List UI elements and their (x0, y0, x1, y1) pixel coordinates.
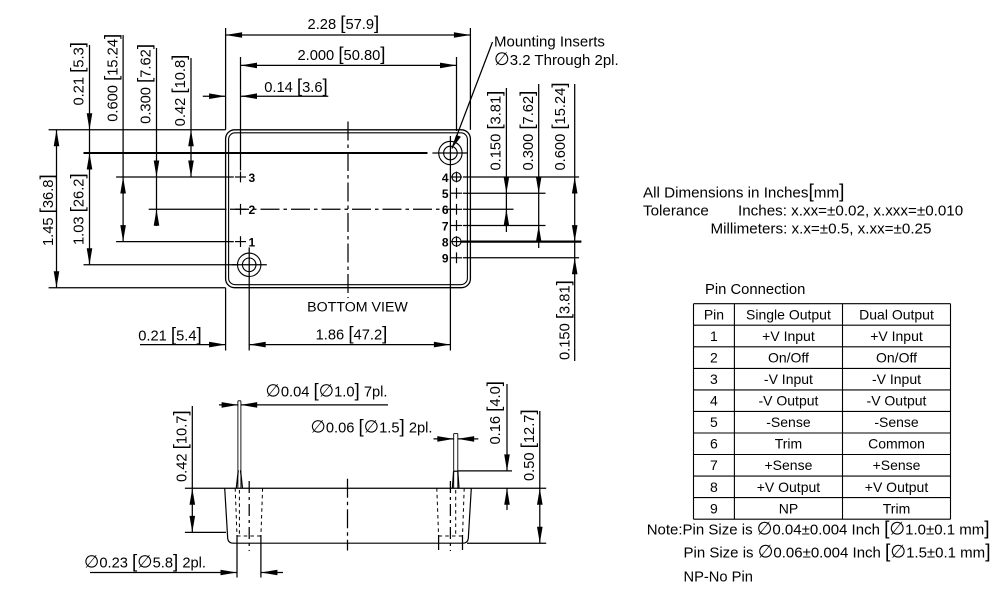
svg-text:NP: NP (779, 500, 798, 516)
svg-text:6: 6 (710, 436, 718, 452)
svg-text:Note:Pin Size is ∅0.04±0.004 I: Note:Pin Size is ∅0.04±0.004 Inch [∅1.0±… (647, 519, 990, 540)
svg-text:Trim: Trim (883, 500, 910, 516)
svg-text:BOTTOM VIEW: BOTTOM VIEW (307, 300, 408, 316)
svg-text:Pin Size is ∅0.06±0.004 Inch [: Pin Size is ∅0.06±0.004 Inch [∅1.5±0.1 m… (684, 542, 991, 563)
svg-text:Millimeters: x.x=±0.5, x.xx=±0: Millimeters: x.x=±0.5, x.xx=±0.25 (711, 221, 932, 238)
svg-text:4: 4 (442, 171, 449, 185)
svg-text:5: 5 (710, 414, 718, 430)
svg-text:+V Input: +V Input (870, 328, 923, 344)
svg-text:Common: Common (868, 436, 925, 452)
svg-text:2: 2 (710, 350, 718, 366)
svg-text:Mounting Inserts: Mounting Inserts (494, 34, 605, 51)
svg-text:+V Input: +V Input (762, 328, 815, 344)
svg-text:+Sense: +Sense (765, 457, 813, 473)
svg-text:9: 9 (710, 500, 718, 516)
svg-text:3: 3 (249, 171, 256, 185)
svg-text:2: 2 (249, 203, 256, 217)
svg-text:∅3.2 Through 2pl.: ∅3.2 Through 2pl. (494, 49, 619, 69)
svg-text:+V Output: +V Output (757, 479, 821, 495)
svg-text:7: 7 (442, 219, 449, 233)
svg-text:5: 5 (442, 187, 449, 201)
svg-text:-Sense: -Sense (766, 414, 811, 430)
svg-text:8: 8 (710, 479, 718, 495)
svg-text:Dual Output: Dual Output (859, 306, 934, 322)
svg-text:7: 7 (710, 457, 718, 473)
svg-text:Pin Connection: Pin Connection (705, 282, 805, 298)
svg-text:On/Off: On/Off (768, 350, 809, 366)
svg-text:Pin: Pin (704, 306, 724, 322)
svg-text:4: 4 (710, 393, 718, 409)
svg-text:8: 8 (442, 236, 449, 250)
svg-text:1: 1 (710, 328, 718, 344)
svg-text:6: 6 (442, 203, 449, 217)
svg-text:+V Output: +V Output (865, 479, 929, 495)
svg-text:-V Input: -V Input (764, 371, 813, 387)
svg-text:On/Off: On/Off (876, 350, 917, 366)
svg-text:-Sense: -Sense (874, 414, 919, 430)
svg-text:+Sense: +Sense (873, 457, 921, 473)
svg-text:NP-No Pin: NP-No Pin (684, 570, 753, 586)
svg-text:-V Output: -V Output (758, 393, 818, 409)
svg-text:-V Output: -V Output (867, 393, 927, 409)
svg-text:Inches: x.xx=±0.02, x.xxx=±0.0: Inches: x.xx=±0.02, x.xxx=±0.010 (738, 203, 963, 220)
svg-text:Tolerance: Tolerance (643, 203, 709, 220)
svg-text:Trim: Trim (775, 436, 802, 452)
svg-text:9: 9 (442, 252, 449, 266)
svg-text:3: 3 (710, 371, 718, 387)
svg-text:-V Input: -V Input (872, 371, 921, 387)
svg-text:All Dimensions in Inches[mm]: All Dimensions in Inches[mm] (643, 182, 844, 203)
svg-text:Single Output: Single Output (746, 306, 831, 322)
